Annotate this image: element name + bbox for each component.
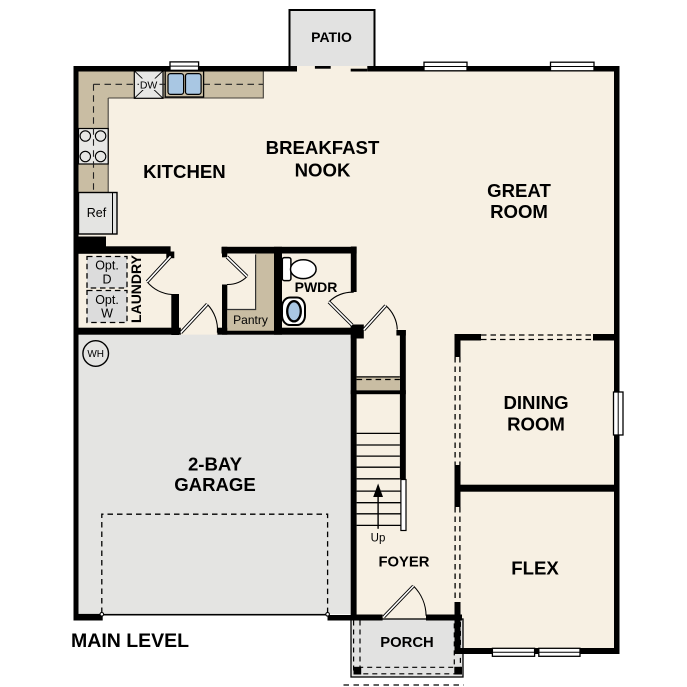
svg-text:Up: Up (371, 533, 386, 545)
svg-text:PORCH: PORCH (380, 635, 433, 651)
svg-text:WH: WH (87, 349, 104, 360)
svg-text:DW: DW (140, 79, 158, 91)
svg-text:KITCHEN: KITCHEN (143, 161, 226, 182)
svg-text:PATIO: PATIO (311, 29, 352, 45)
svg-text:GREAT: GREAT (487, 180, 551, 201)
svg-text:ROOM: ROOM (507, 414, 565, 435)
svg-text:DINING: DINING (503, 392, 568, 413)
svg-text:GARAGE: GARAGE (174, 474, 256, 495)
svg-text:Opt.: Opt. (95, 259, 119, 273)
svg-text:FOYER: FOYER (379, 554, 430, 570)
svg-text:NOOK: NOOK (295, 159, 351, 180)
svg-text:2-BAY: 2-BAY (188, 454, 243, 475)
svg-text:LAUNDRY: LAUNDRY (128, 254, 144, 323)
svg-text:MAIN LEVEL: MAIN LEVEL (71, 630, 189, 652)
svg-text:ROOM: ROOM (490, 201, 548, 222)
svg-text:W: W (101, 307, 113, 321)
svg-text:Opt.: Opt. (95, 293, 119, 307)
svg-text:Ref: Ref (87, 206, 107, 220)
svg-text:BREAKFAST: BREAKFAST (266, 137, 380, 158)
svg-text:FLEX: FLEX (511, 557, 559, 578)
svg-text:Pantry: Pantry (233, 313, 268, 327)
svg-text:D: D (102, 273, 111, 287)
svg-text:PWDR: PWDR (295, 279, 338, 295)
